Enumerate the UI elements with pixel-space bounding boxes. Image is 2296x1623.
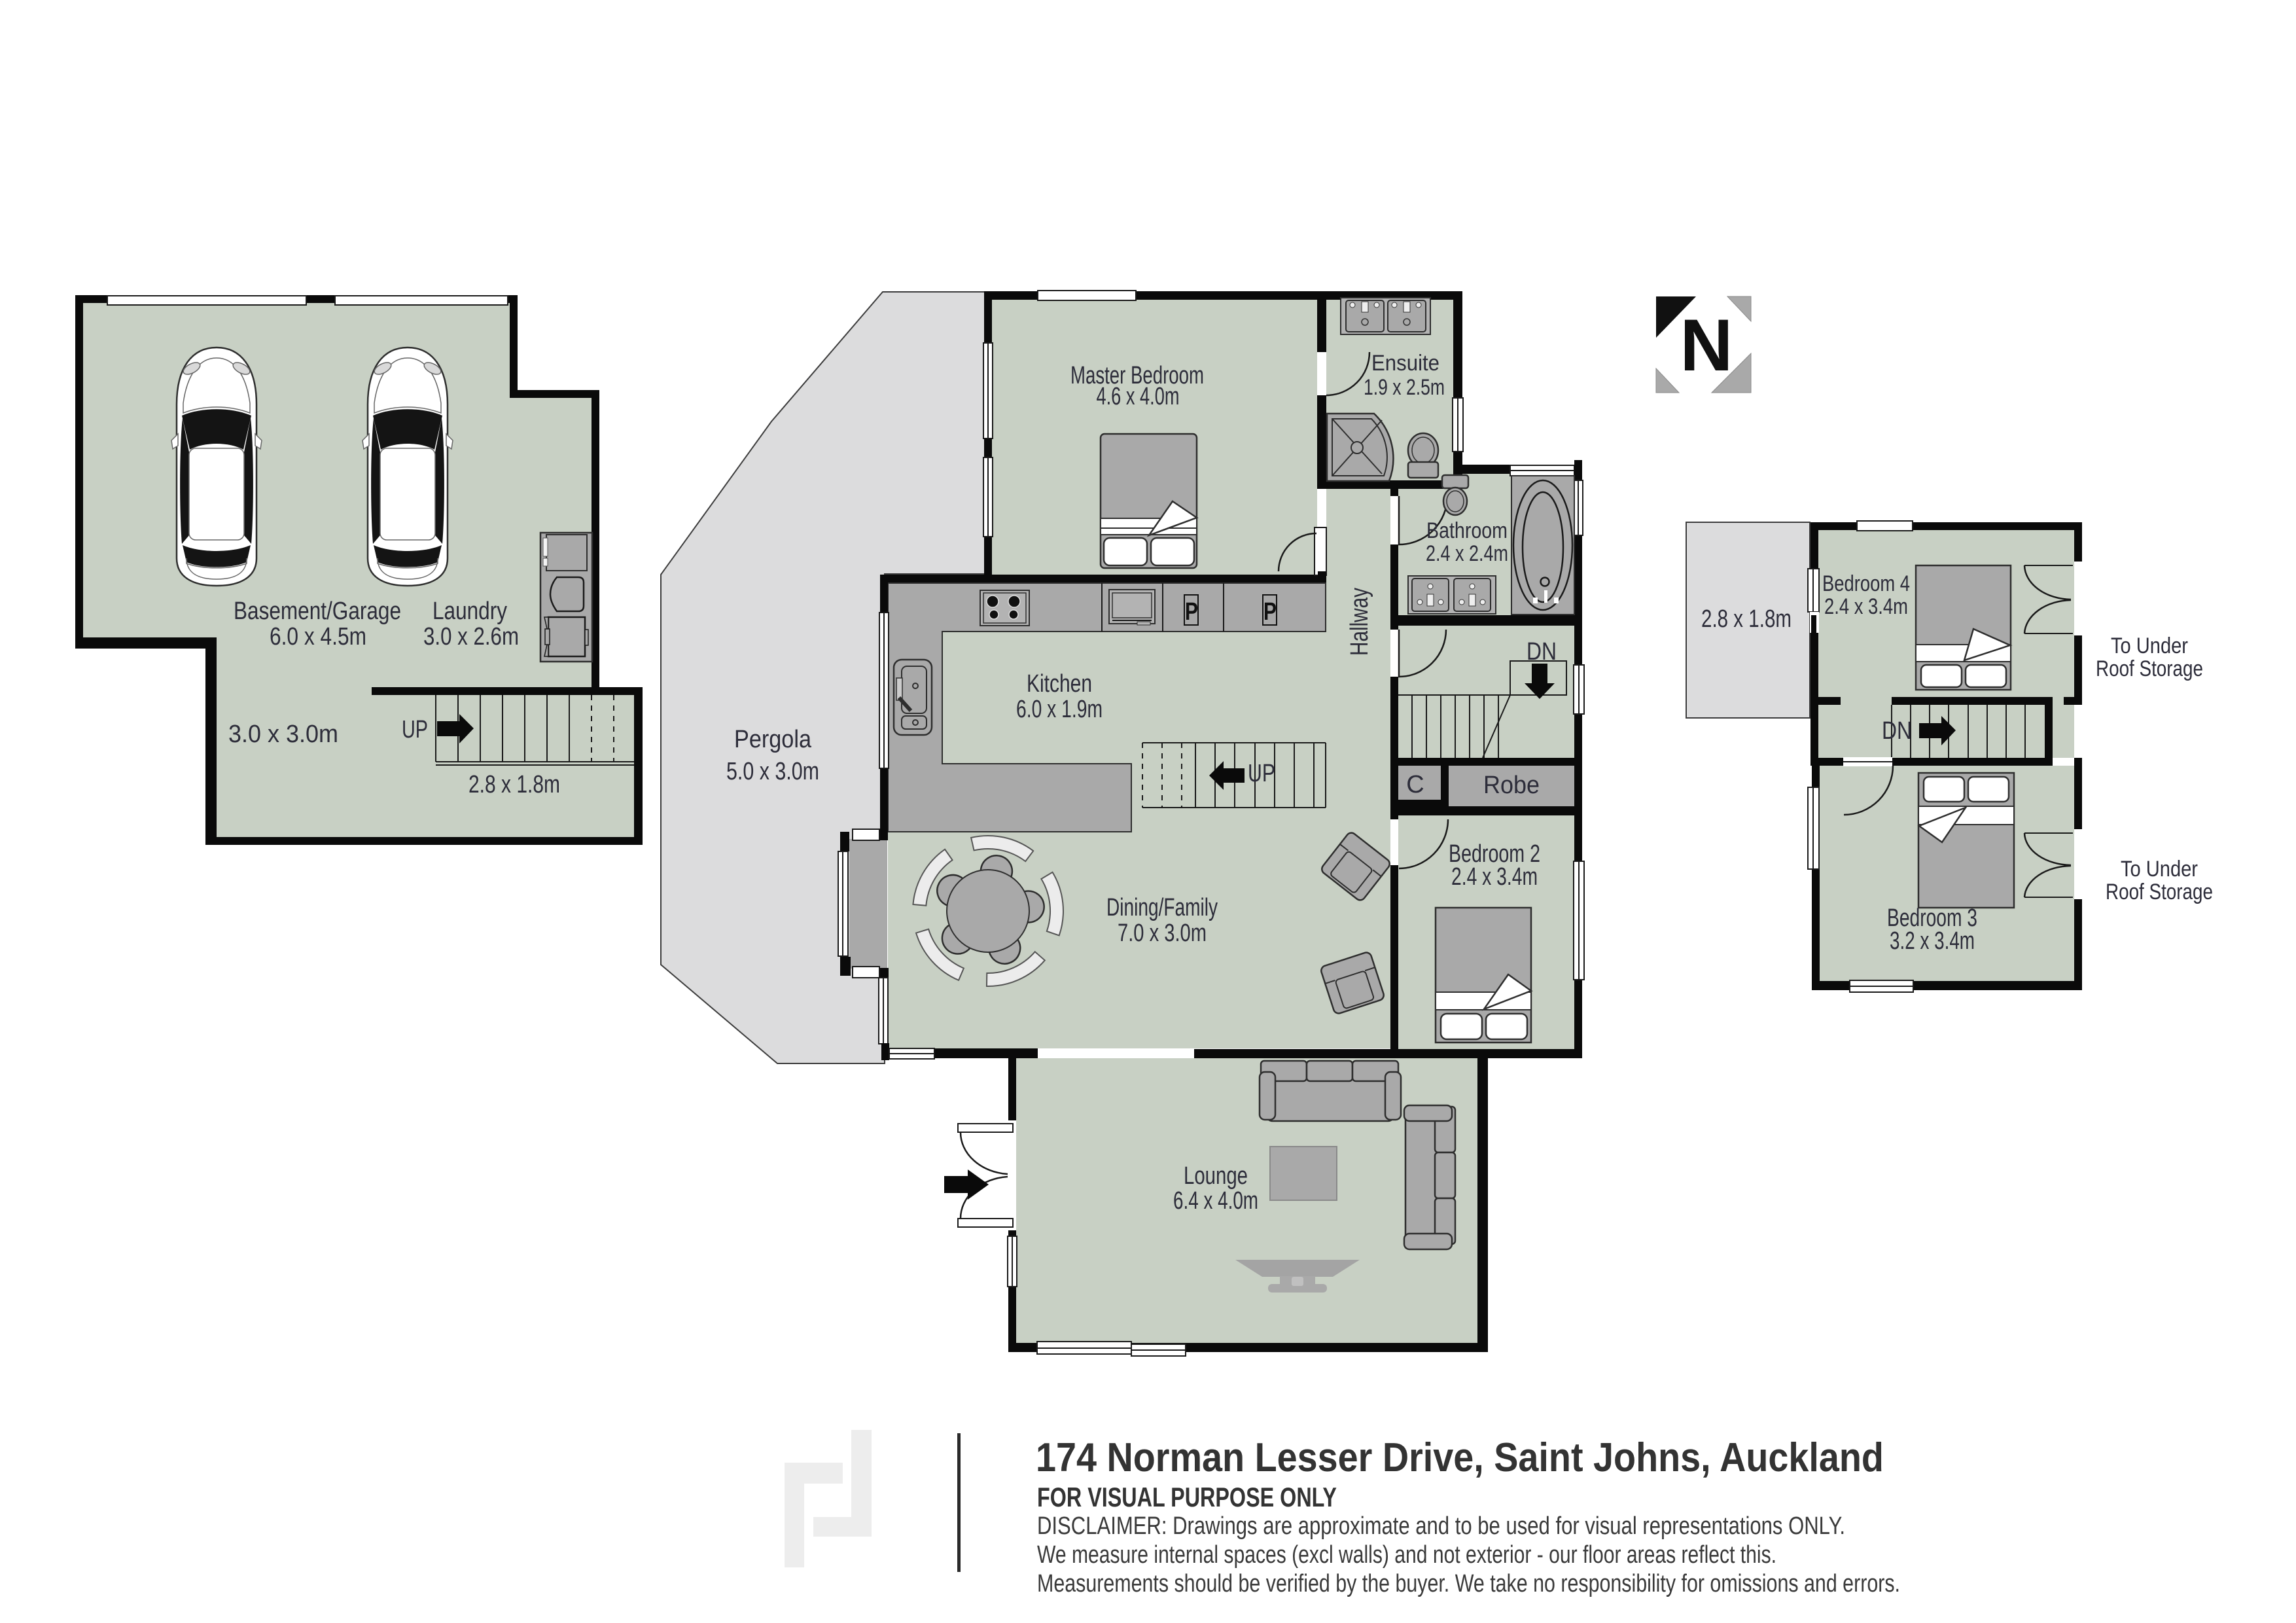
svg-text:174 Norman Lesser Drive, Saint: 174 Norman Lesser Drive, Saint Johns, Au… <box>1036 1435 1884 1480</box>
svg-text:6.0 x 1.9m: 6.0 x 1.9m <box>1016 696 1103 723</box>
svg-text:Laundry: Laundry <box>433 597 507 625</box>
svg-text:Roof Storage: Roof Storage <box>2106 880 2213 904</box>
svg-text:Kitchen: Kitchen <box>1027 670 1092 698</box>
svg-text:Ensuite: Ensuite <box>1371 351 1439 376</box>
svg-text:3.0 x 2.6m: 3.0 x 2.6m <box>423 623 519 651</box>
svg-text:We measure internal spaces (ex: We measure internal spaces (excl walls) … <box>1037 1541 1776 1569</box>
svg-text:Bathroom: Bathroom <box>1426 518 1508 543</box>
svg-text:DN: DN <box>1882 717 1912 745</box>
svg-text:Bedroom 4: Bedroom 4 <box>1822 571 1910 596</box>
svg-text:Pergola: Pergola <box>734 726 812 753</box>
svg-text:3.2 x 3.4m: 3.2 x 3.4m <box>1890 927 1975 955</box>
svg-text:DISCLAIMER: Drawings are appr: DISCLAIMER: Drawings are approximate and… <box>1037 1512 1845 1540</box>
svg-text:6.0 x 4.5m: 6.0 x 4.5m <box>270 623 366 651</box>
svg-text:2.8 x 1.8m: 2.8 x 1.8m <box>1701 605 1792 633</box>
svg-text:N: N <box>1680 304 1733 386</box>
svg-text:5.0 x 3.0m: 5.0 x 3.0m <box>726 758 819 785</box>
svg-text:FOR VISUAL PURPOSE ONLY: FOR VISUAL PURPOSE ONLY <box>1037 1482 1337 1512</box>
svg-text:4.6 x 4.0m: 4.6 x 4.0m <box>1097 383 1180 410</box>
svg-text:Robe: Robe <box>1483 772 1540 799</box>
svg-text:To Under: To Under <box>2111 633 2188 658</box>
svg-text:Measurements should be verifie: Measurements should be verified by the b… <box>1037 1570 1900 1597</box>
svg-text:DN: DN <box>1527 638 1557 666</box>
svg-text:6.4 x 4.0m: 6.4 x 4.0m <box>1173 1187 1258 1215</box>
svg-text:P: P <box>1263 598 1277 626</box>
svg-text:To Under: To Under <box>2121 857 2198 882</box>
svg-text:UP: UP <box>1248 760 1275 787</box>
svg-text:2.4 x 2.4m: 2.4 x 2.4m <box>1426 541 1508 566</box>
svg-text:7.0 x 3.0m: 7.0 x 3.0m <box>1118 919 1207 947</box>
svg-text:Roof Storage: Roof Storage <box>2096 656 2203 681</box>
svg-text:2.4 x 3.4m: 2.4 x 3.4m <box>1451 863 1538 891</box>
svg-text:Lounge: Lounge <box>1184 1162 1248 1190</box>
svg-text:2.4 x 3.4m: 2.4 x 3.4m <box>1824 594 1908 619</box>
svg-text:Hallway: Hallway <box>1346 588 1373 656</box>
svg-text:P: P <box>1185 598 1198 626</box>
svg-text:C: C <box>1406 771 1424 798</box>
svg-text:1.9 x 2.5m: 1.9 x 2.5m <box>1364 375 1445 400</box>
svg-text:2.8 x 1.8m: 2.8 x 1.8m <box>468 771 560 798</box>
svg-text:UP: UP <box>402 716 428 743</box>
svg-text:Basement/Garage: Basement/Garage <box>234 597 401 625</box>
svg-text:Dining/Family: Dining/Family <box>1106 894 1218 921</box>
svg-text:3.0 x 3.0m: 3.0 x 3.0m <box>228 721 338 748</box>
